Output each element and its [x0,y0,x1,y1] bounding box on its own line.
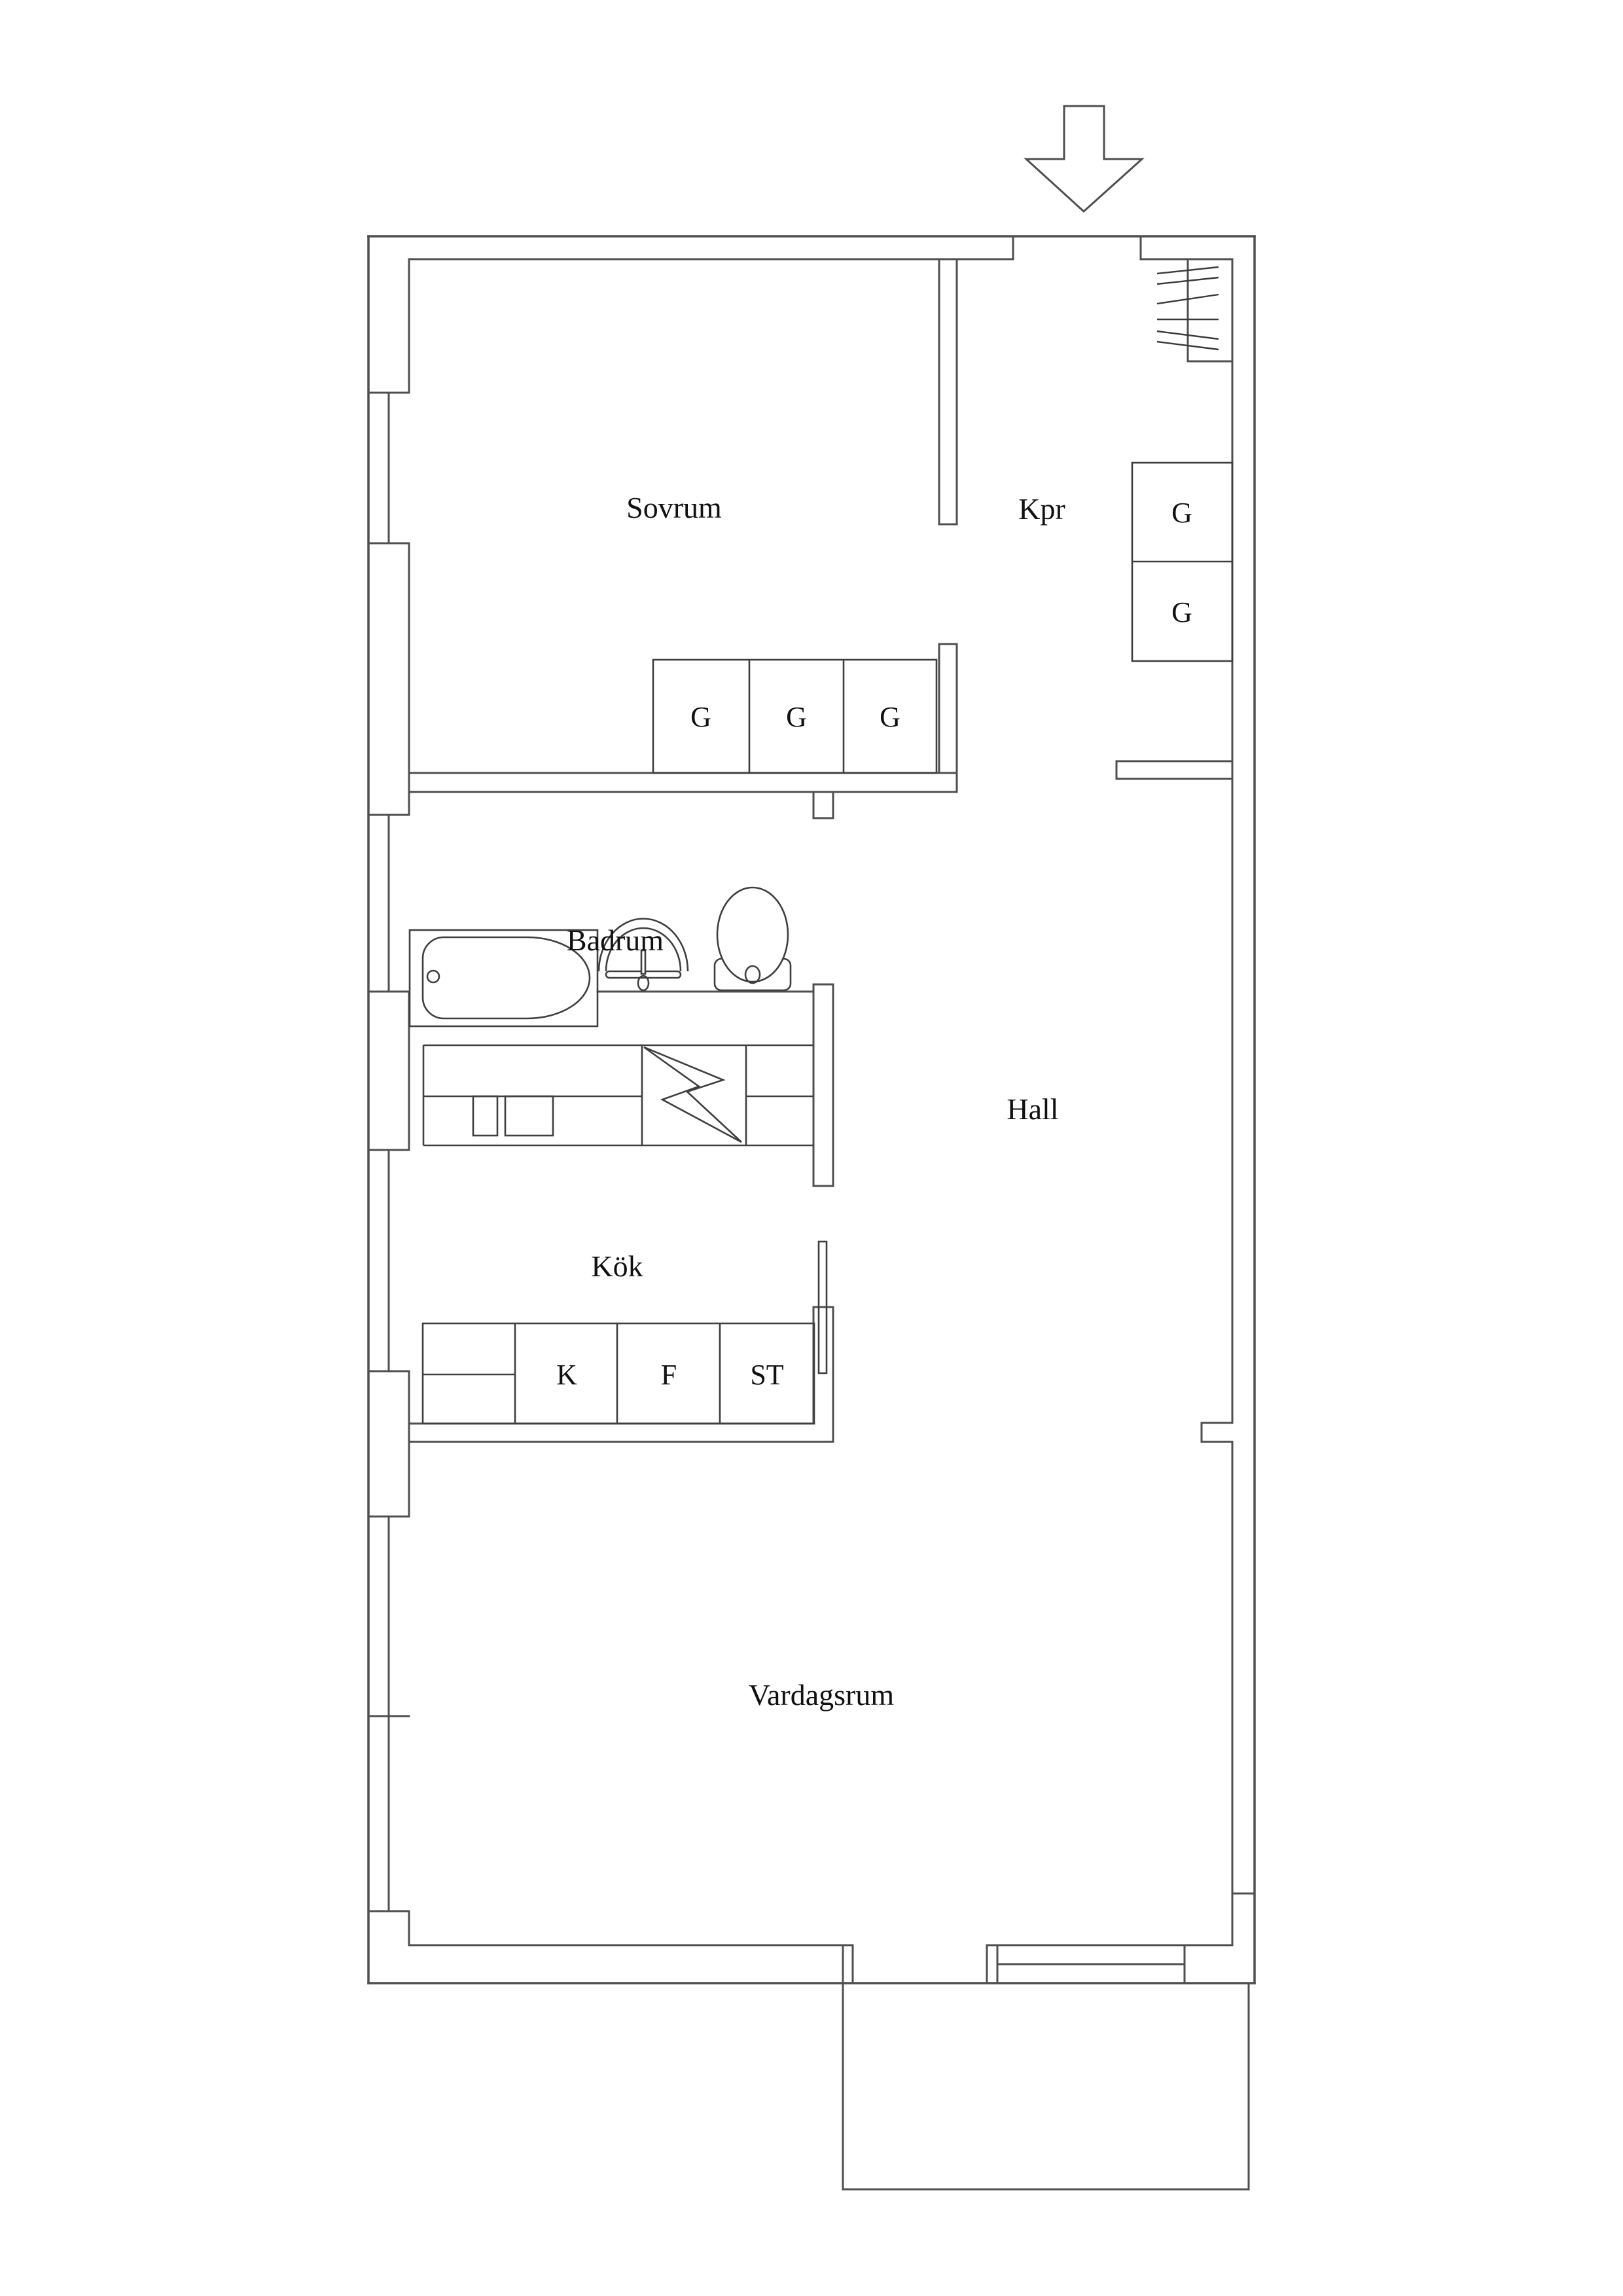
appliance-label-stad: ST [750,1359,783,1391]
wardrobe-label: G [786,701,807,733]
appliance-label-kyl: K [556,1359,577,1391]
hanging-rail-icon [1157,259,1232,361]
toilet-icon [715,888,791,990]
sink-basin-icon [505,1096,553,1136]
bathroom-fixtures [410,888,813,1026]
stove-icon [473,1096,497,1136]
entrance-arrow-icon [1026,106,1142,211]
interior-walls [409,259,1232,1442]
wardrobe-label: G [690,701,711,733]
room-label-kpr: Kpr [1018,492,1065,526]
lightning-icon [644,1047,741,1142]
appliance-label-frys: F [661,1359,677,1391]
room-label-vardagsrum: Vardagsrum [749,1678,894,1712]
hall-wardrobes [1132,463,1232,661]
room-label-sovrum: Sovrum [626,491,722,524]
floor-plan-canvas: Sovrum Kpr Badrum Hall Kök Vardagsrum G … [0,0,1623,2296]
wardrobe-label: G [1171,596,1192,628]
windows-left-facade [368,393,409,1911]
outer-walls [368,236,1255,1983]
labels: Sovrum Kpr Badrum Hall Kök Vardagsrum G … [556,491,1192,1712]
room-label-kok: Kök [591,1249,643,1283]
wardrobe-label: G [880,701,901,733]
balcony-outline [843,1983,1249,2189]
room-label-badrum: Badrum [567,924,664,957]
room-label-hall: Hall [1007,1092,1058,1126]
balcony-door-and-window [843,1945,1185,1983]
wardrobe-label: G [1171,497,1192,529]
kitchen-upper-counter [423,1045,813,1145]
